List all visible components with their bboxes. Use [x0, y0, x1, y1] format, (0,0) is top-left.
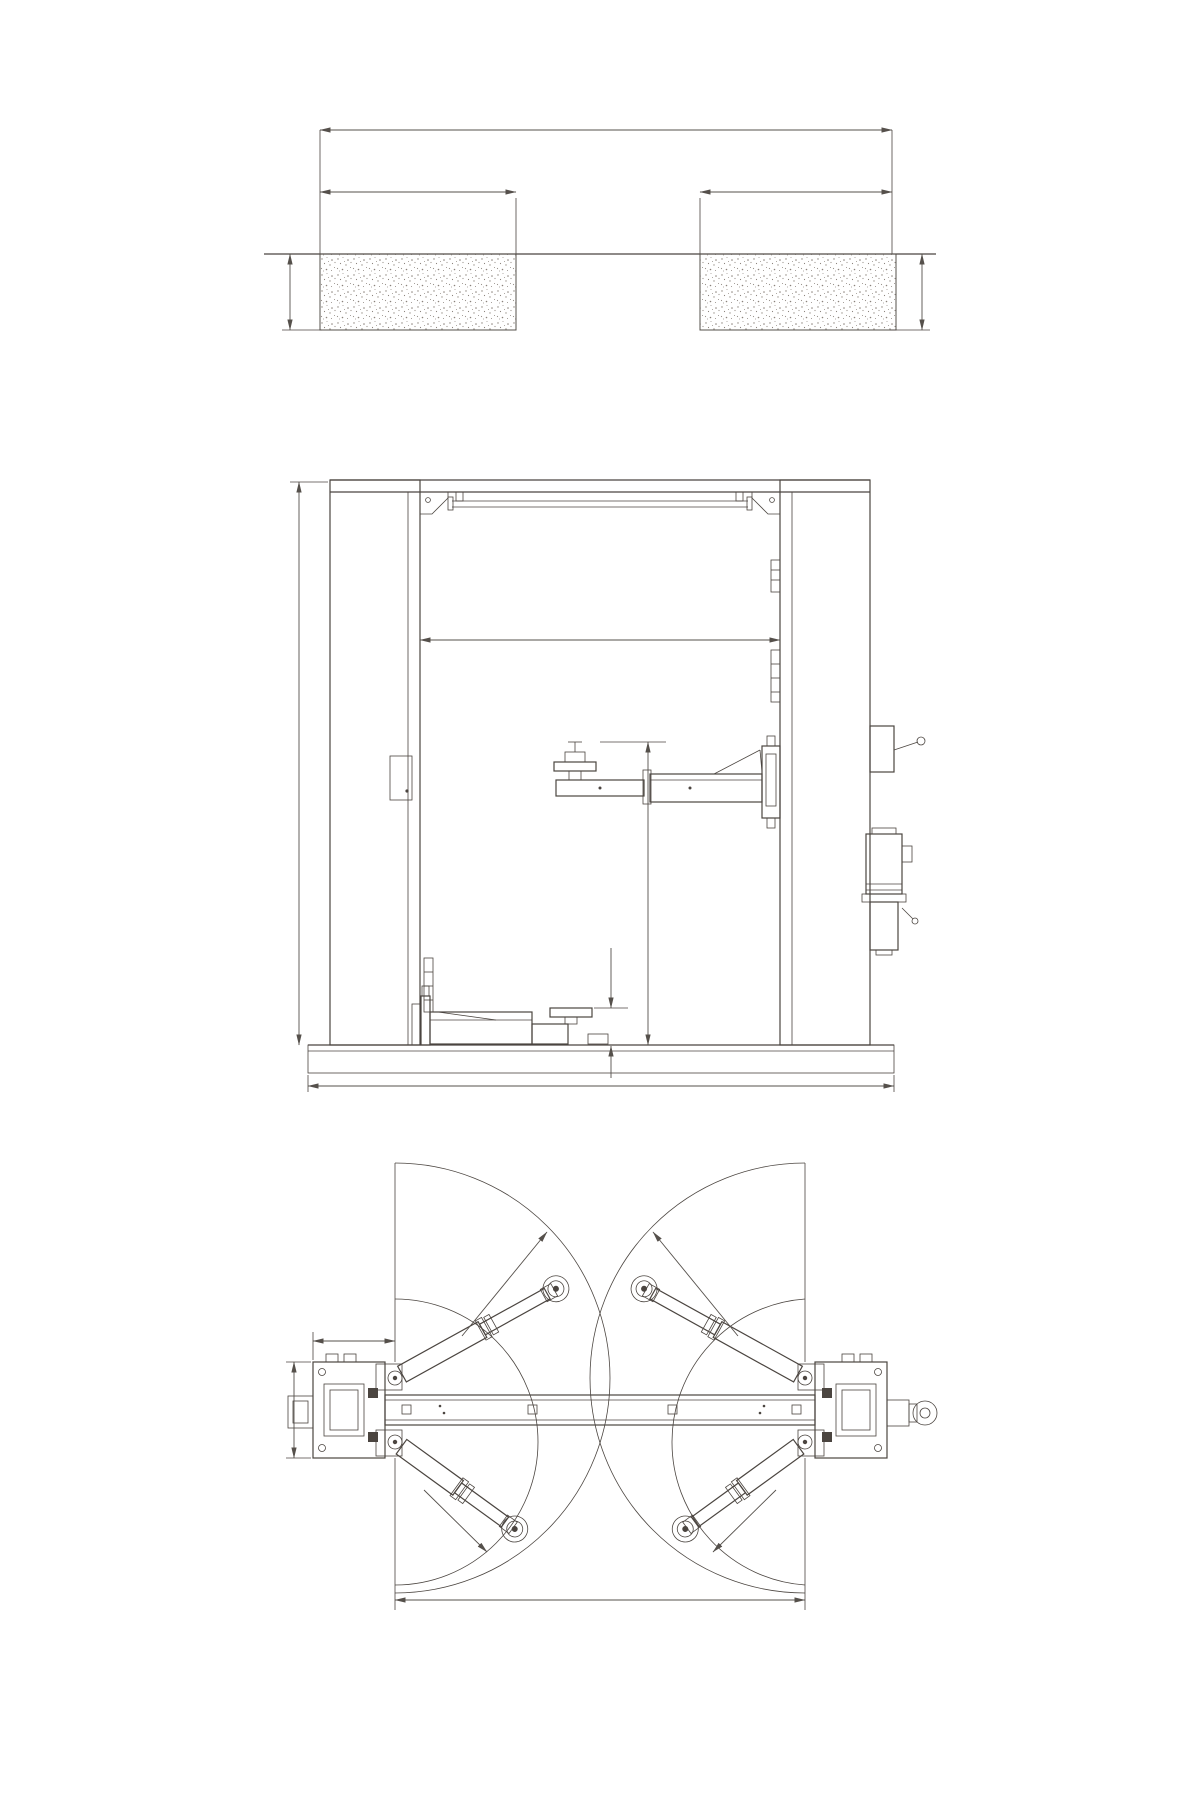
- arc-r730-right: [672, 1299, 805, 1585]
- left-post: [330, 480, 420, 1045]
- oil-tank: [870, 902, 898, 950]
- dimension-base-depth-460: [286, 1362, 311, 1458]
- dimension-height-3670: [290, 482, 328, 1045]
- plan-left-post: [313, 1354, 402, 1458]
- foundation-block-right: [700, 254, 896, 330]
- floor-base-plate: [308, 1045, 894, 1073]
- lock-release-handle-box: [870, 726, 925, 772]
- plan-arm-rear-right: [667, 1427, 818, 1547]
- foundation-block-left: [320, 254, 516, 330]
- dimension-depth-left-500: [282, 254, 322, 330]
- left-post-lock-strip: [424, 958, 433, 1012]
- right-post-lock-strip-upper: [771, 560, 780, 592]
- left-post-side-box: [390, 756, 412, 800]
- dimension-arm-offset-360: [313, 1332, 395, 1360]
- plan-base-plate: [385, 1395, 815, 1425]
- top-beam: [330, 480, 870, 492]
- swing-radius-arcs: [395, 1163, 805, 1593]
- right-post-lock-strip-lower: [771, 650, 780, 702]
- dimension-lift-height-1850: [600, 742, 666, 1045]
- dimension-pad-height-120: [594, 948, 628, 1078]
- overhead-shutoff-rod: [448, 492, 752, 510]
- technical-drawing: [0, 0, 1200, 1800]
- plan-arm-rear-left: [382, 1427, 533, 1547]
- beam-gusset-left: [420, 492, 448, 514]
- radius-label-r1100-right: [653, 1232, 738, 1336]
- plan-left-stop-block: [288, 1396, 313, 1428]
- plan-view: [286, 1163, 937, 1610]
- plan-power-unit: [887, 1400, 937, 1426]
- plan-arm-front-right: [626, 1271, 817, 1393]
- raised-swing-arm: [554, 736, 780, 828]
- lowered-arm-pad: [550, 1008, 592, 1024]
- beam-gusset-right: [752, 492, 780, 514]
- plan-right-post: [798, 1354, 887, 1458]
- dimension-base-width-3320: [308, 1075, 894, 1092]
- right-post: [780, 480, 870, 1045]
- lowered-swing-arm: [412, 986, 608, 1045]
- foundation-diagram: [264, 130, 936, 330]
- raised-arm-pad: [554, 742, 596, 780]
- dimension-post-span-2500: [395, 1458, 805, 1610]
- plan-arm-front-left: [383, 1271, 574, 1393]
- radius-label-r1100-left: [462, 1232, 547, 1336]
- spec-sheet-page: [0, 0, 1200, 1800]
- front-view: [290, 480, 925, 1092]
